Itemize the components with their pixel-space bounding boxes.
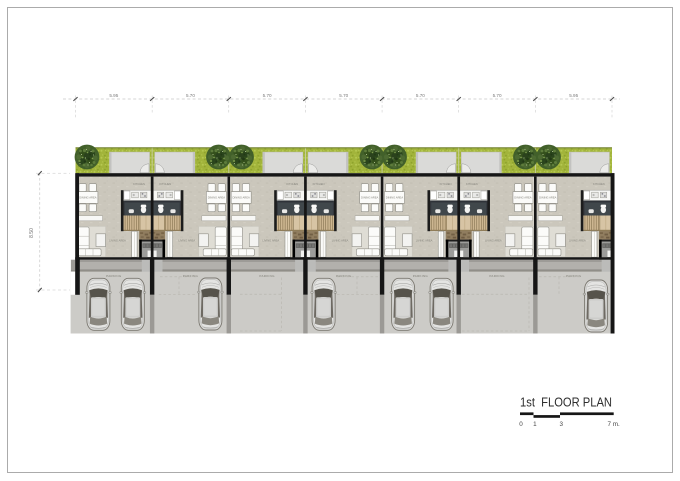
svg-text:LIVING AREA: LIVING AREA — [569, 239, 586, 243]
svg-text:PARKING: PARKING — [566, 274, 582, 278]
svg-text:DINING AREA: DINING AREA — [233, 195, 251, 199]
svg-text:KITCHEN: KITCHEN — [593, 182, 605, 186]
svg-text:5.70: 5.70 — [263, 93, 272, 98]
svg-text:KITCHEN: KITCHEN — [133, 182, 145, 186]
svg-text:KITCHEN: KITCHEN — [313, 182, 325, 186]
svg-text:PARKING: PARKING — [106, 274, 122, 278]
svg-text:LIVING AREA: LIVING AREA — [178, 239, 195, 243]
svg-text:DINING AREA: DINING AREA — [208, 195, 226, 199]
svg-text:LIVING AREA: LIVING AREA — [485, 239, 502, 243]
svg-text:5.70: 5.70 — [416, 93, 425, 98]
svg-text:5.70: 5.70 — [186, 93, 195, 98]
svg-text:1: 1 — [533, 421, 537, 428]
svg-text:5.70: 5.70 — [339, 93, 348, 98]
svg-text:PARKING: PARKING — [259, 274, 275, 278]
svg-text:DINING AREA: DINING AREA — [539, 195, 557, 199]
svg-text:5.95: 5.95 — [109, 93, 118, 98]
svg-text:DINING AREA: DINING AREA — [361, 195, 379, 199]
svg-text:DINING AREA: DINING AREA — [386, 195, 404, 199]
svg-text:DINING AREA: DINING AREA — [79, 195, 97, 199]
svg-text:KITCHEN: KITCHEN — [466, 182, 478, 186]
svg-text:PARKING: PARKING — [336, 274, 352, 278]
svg-text:0: 0 — [519, 421, 523, 428]
svg-text:LIVING AREA: LIVING AREA — [109, 239, 126, 243]
svg-text:LIVING AREA: LIVING AREA — [416, 239, 433, 243]
svg-text:KITCHEN: KITCHEN — [286, 182, 298, 186]
svg-text:PARKING: PARKING — [413, 274, 429, 278]
svg-text:1st FLOOR PLAN: 1st FLOOR PLAN — [520, 395, 612, 410]
svg-text:KITCHEN: KITCHEN — [159, 182, 171, 186]
svg-text:3: 3 — [560, 421, 564, 428]
svg-text:5.95: 5.95 — [569, 93, 578, 98]
svg-text:LIVING AREA: LIVING AREA — [332, 239, 349, 243]
svg-text:5.70: 5.70 — [493, 93, 502, 98]
svg-text:LIVING AREA: LIVING AREA — [262, 239, 279, 243]
svg-text:PARKING: PARKING — [183, 274, 199, 278]
svg-text:8.50: 8.50 — [29, 228, 35, 238]
svg-text:7 m.: 7 m. — [608, 421, 620, 428]
svg-text:KITCHEN: KITCHEN — [440, 182, 452, 186]
svg-text:PARKING: PARKING — [489, 274, 505, 278]
svg-text:DINING AREA: DINING AREA — [514, 195, 532, 199]
